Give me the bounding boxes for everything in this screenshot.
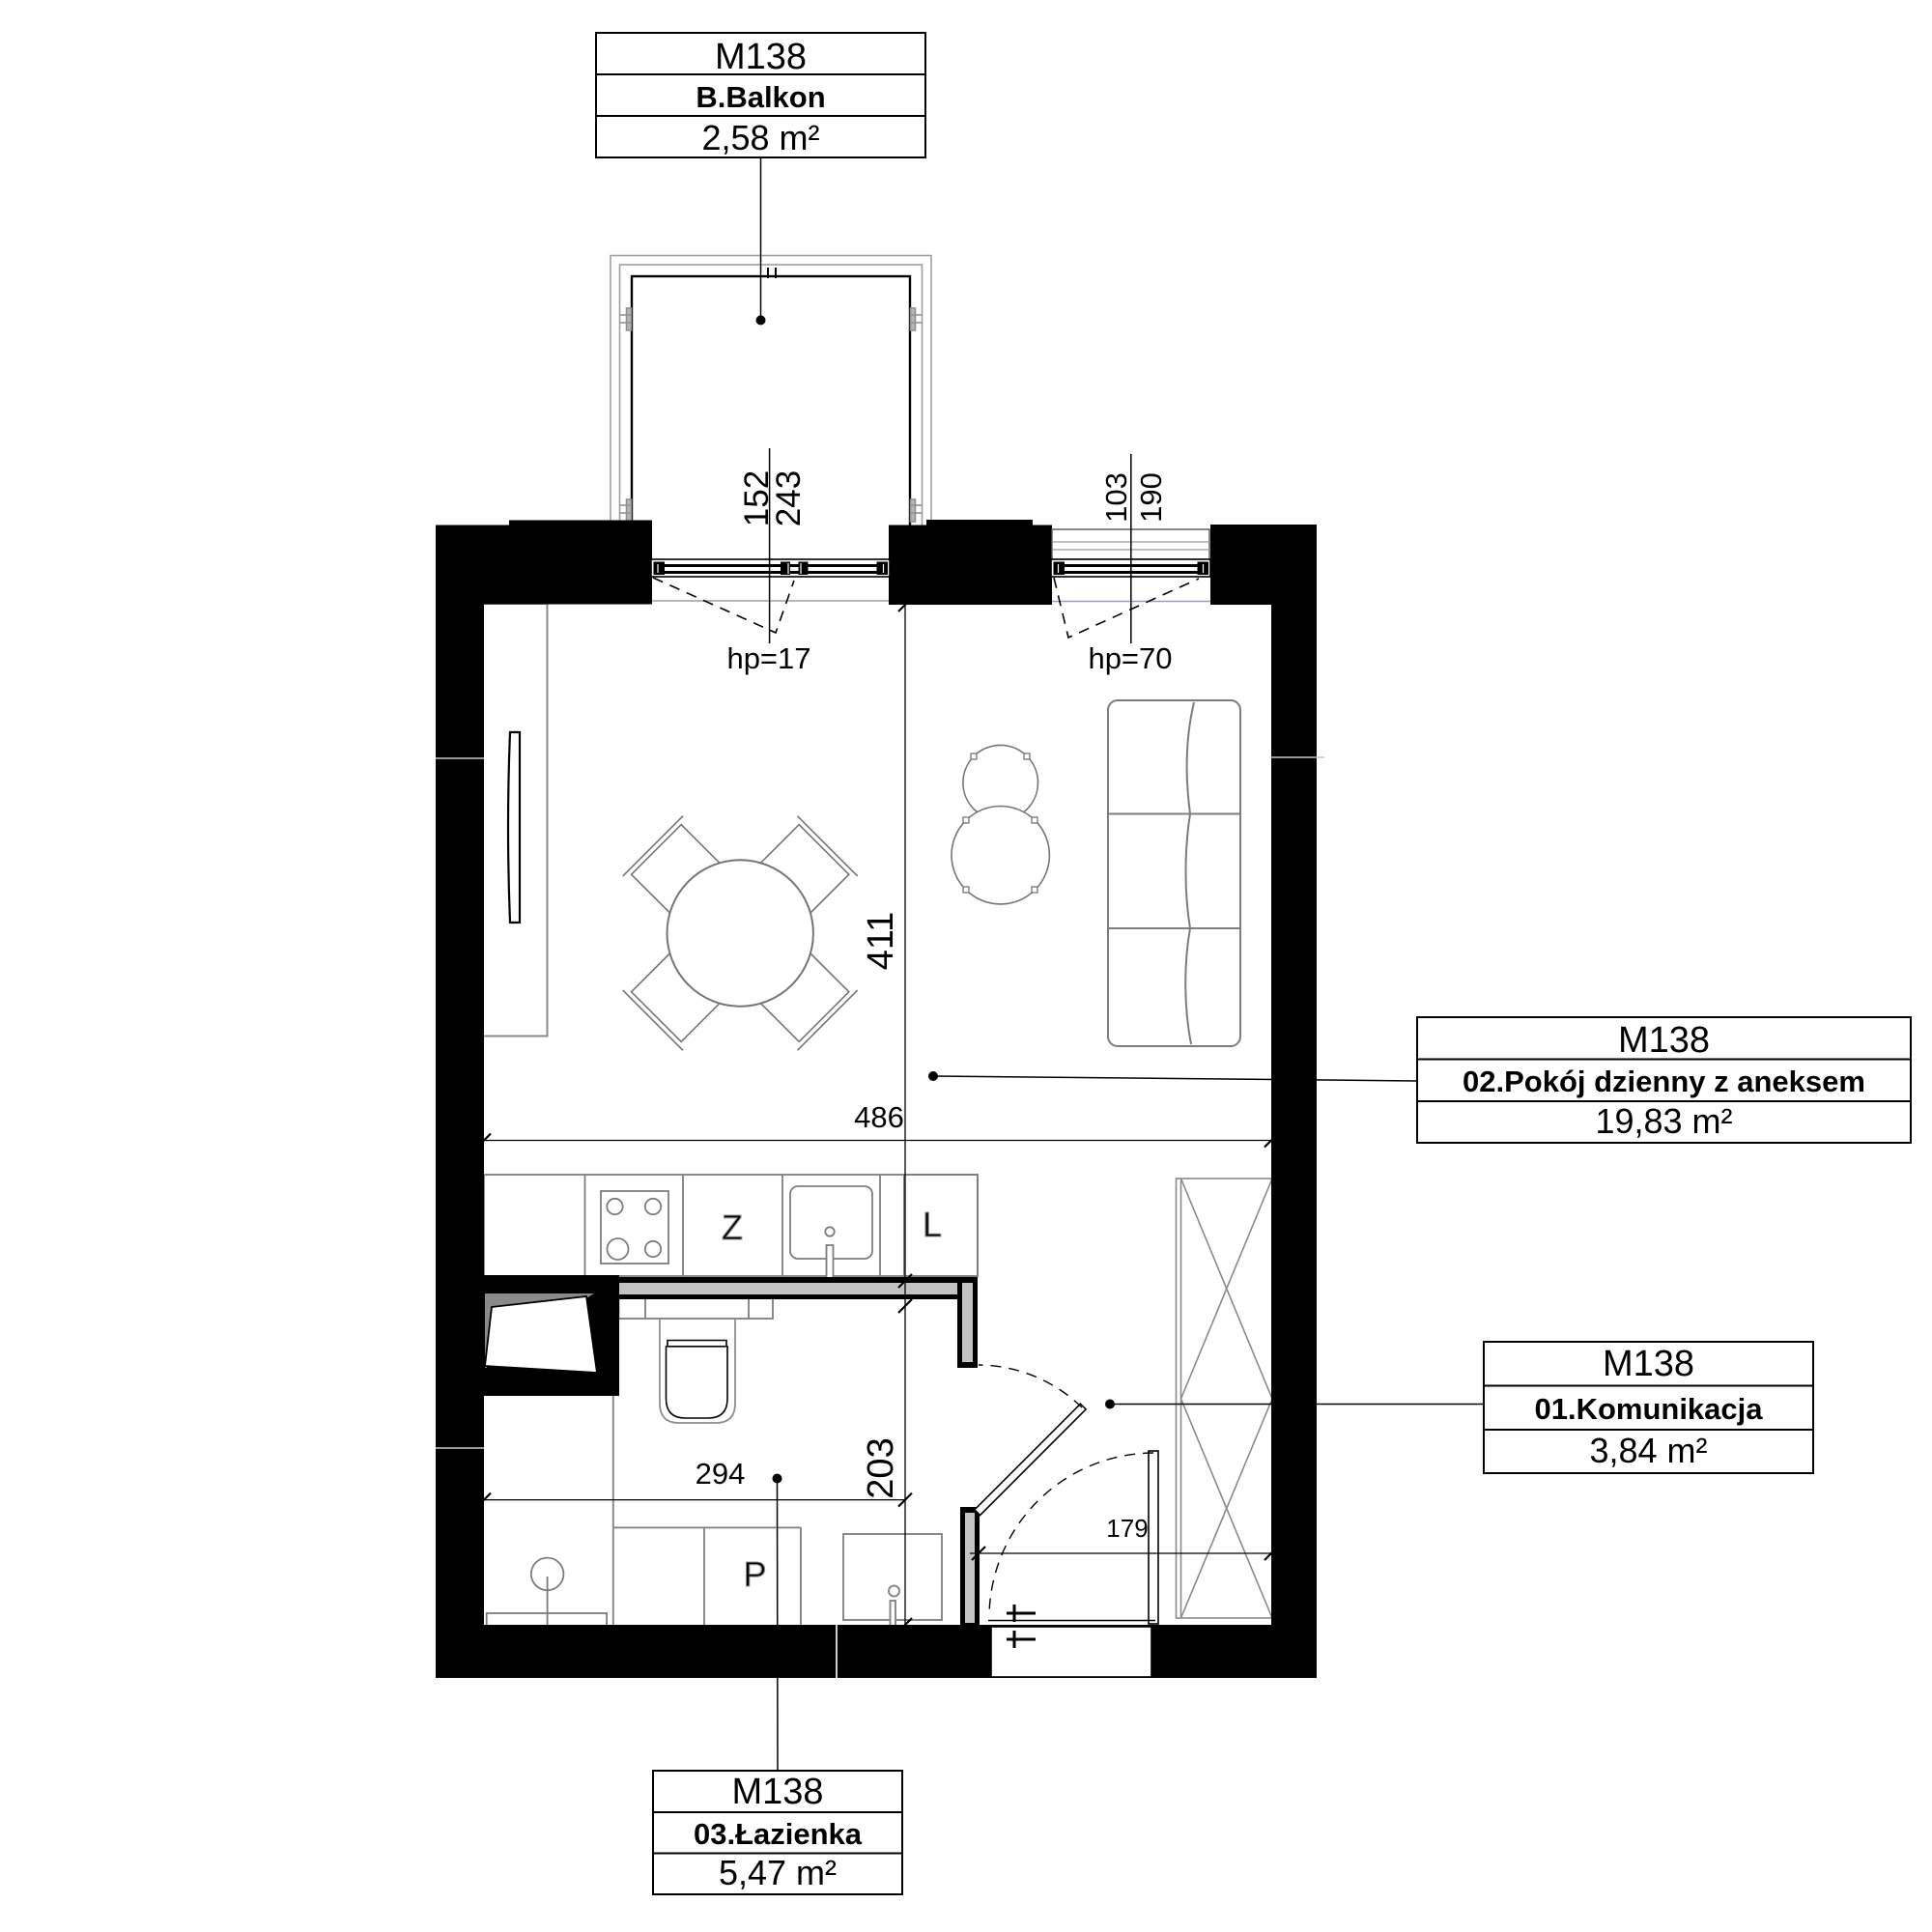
svg-text:L: L xyxy=(923,1205,942,1244)
svg-text:411: 411 xyxy=(861,912,901,971)
svg-text:hp=17: hp=17 xyxy=(726,641,810,675)
svg-text:5,47 m²: 5,47 m² xyxy=(719,1853,837,1892)
svg-text:Z: Z xyxy=(722,1207,743,1247)
svg-text:3,84 m²: 3,84 m² xyxy=(1589,1431,1707,1470)
svg-text:M138: M138 xyxy=(1603,1344,1694,1384)
svg-text:190: 190 xyxy=(1134,472,1168,523)
svg-text:2,58 m²: 2,58 m² xyxy=(701,118,819,157)
svg-text:01.Komunikacja: 01.Komunikacja xyxy=(1534,1392,1763,1426)
svg-text:103: 103 xyxy=(1099,472,1133,523)
svg-text:243: 243 xyxy=(770,470,808,526)
svg-text:19,83 m²: 19,83 m² xyxy=(1595,1101,1732,1141)
svg-text:203: 203 xyxy=(861,1437,901,1498)
svg-text:M138: M138 xyxy=(715,37,807,77)
svg-text:03.Łazienka: 03.Łazienka xyxy=(694,1817,863,1851)
svg-text:486: 486 xyxy=(854,1100,904,1134)
svg-text:P: P xyxy=(743,1554,766,1594)
svg-text:hp=70: hp=70 xyxy=(1088,641,1172,675)
svg-text:294: 294 xyxy=(696,1457,746,1491)
svg-text:M138: M138 xyxy=(1618,1020,1710,1061)
svg-text:B.Balkon: B.Balkon xyxy=(696,80,825,114)
svg-text:179: 179 xyxy=(1106,1514,1148,1543)
svg-text:02.Pokój dzienny z aneksem: 02.Pokój dzienny z aneksem xyxy=(1463,1065,1865,1098)
svg-text:M138: M138 xyxy=(731,1772,823,1812)
